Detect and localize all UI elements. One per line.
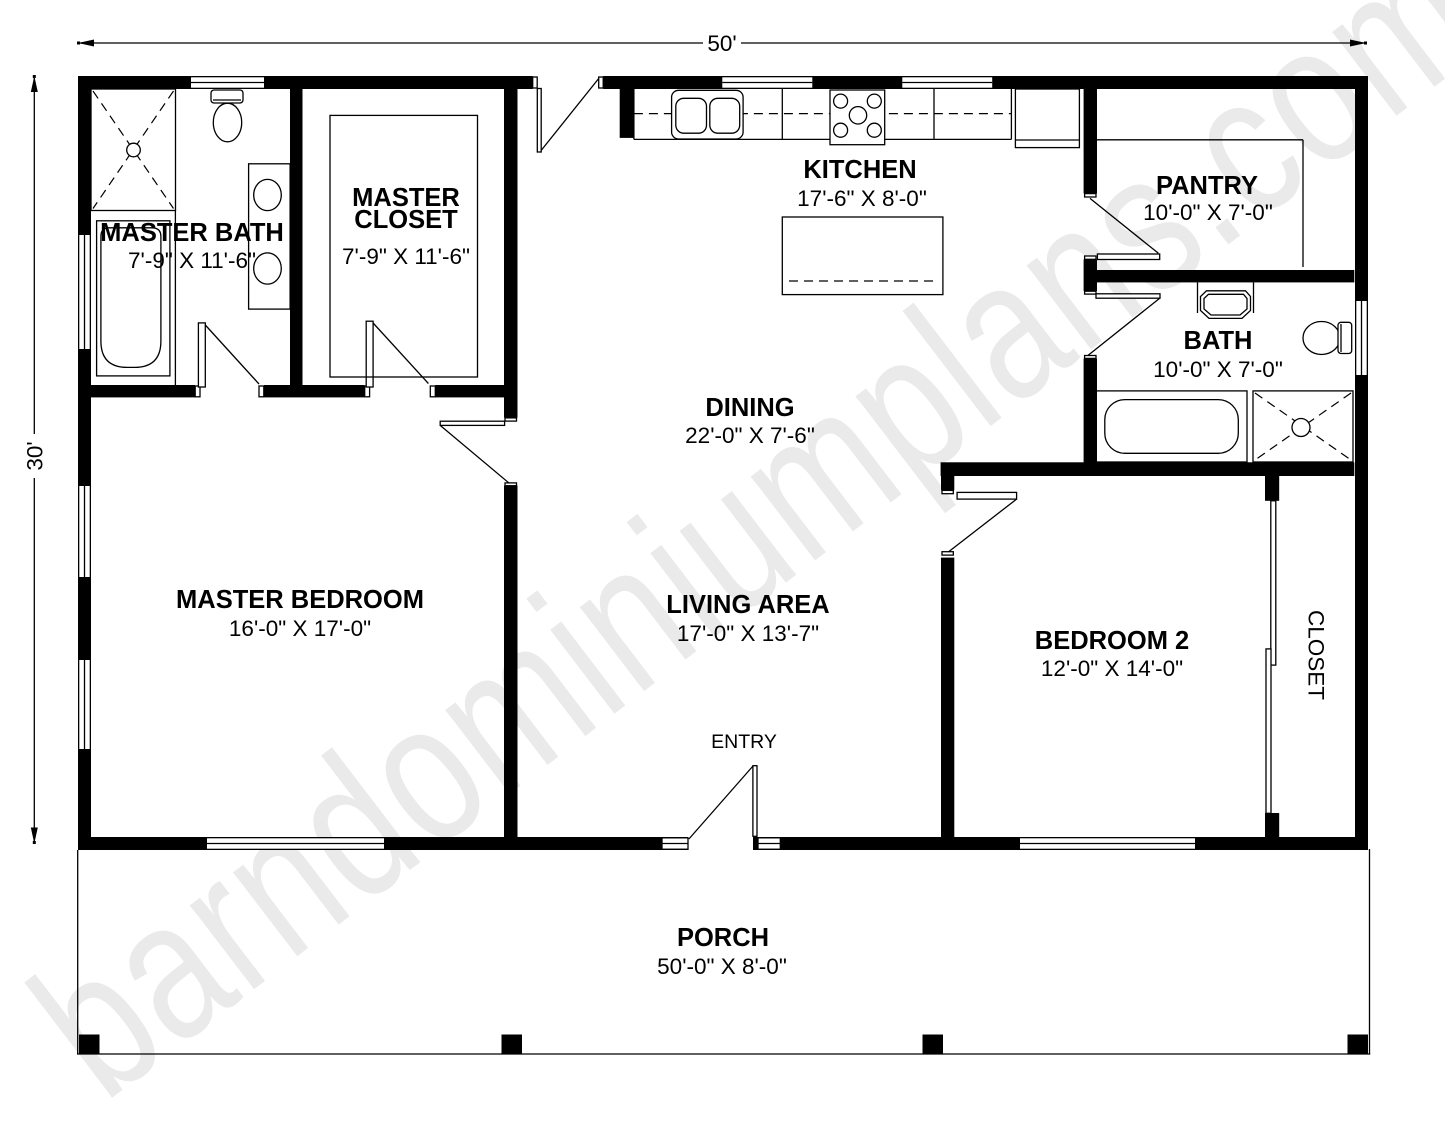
svg-text:CLOSET: CLOSET (1304, 610, 1329, 700)
svg-text:BEDROOM 2: BEDROOM 2 (1035, 627, 1189, 655)
svg-text:ENTRY: ENTRY (711, 731, 777, 753)
svg-text:7'-9" X 11'-6": 7'-9" X 11'-6" (342, 244, 470, 269)
svg-text:7'-9" X 11'-6": 7'-9" X 11'-6" (128, 248, 256, 273)
svg-text:MASTER BATH: MASTER BATH (100, 219, 284, 247)
svg-text:BATH: BATH (1184, 327, 1253, 355)
svg-text:17'-0" X 13'-7": 17'-0" X 13'-7" (677, 621, 819, 646)
svg-text:10'-0" X 7'-0": 10'-0" X 7'-0" (1143, 200, 1273, 225)
svg-text:DINING: DINING (705, 394, 794, 422)
svg-text:PORCH: PORCH (677, 924, 769, 952)
svg-text:30': 30' (23, 441, 48, 470)
svg-text:CLOSET: CLOSET (354, 206, 458, 234)
svg-text:17'-6" X 8'-0": 17'-6" X 8'-0" (797, 186, 927, 211)
svg-text:10'-0" X 7'-0": 10'-0" X 7'-0" (1153, 357, 1283, 382)
svg-text:50': 50' (707, 31, 736, 56)
svg-text:KITCHEN: KITCHEN (803, 156, 916, 184)
svg-text:50'-0" X 8'-0": 50'-0" X 8'-0" (657, 954, 787, 979)
svg-text:22'-0" X 7'-6": 22'-0" X 7'-6" (685, 423, 815, 448)
svg-text:PANTRY: PANTRY (1156, 172, 1258, 200)
svg-text:16'-0" X 17'-0": 16'-0" X 17'-0" (229, 616, 371, 641)
svg-text:12'-0" X 14'-0": 12'-0" X 14'-0" (1041, 656, 1183, 681)
svg-text:MASTER BEDROOM: MASTER BEDROOM (176, 586, 424, 614)
svg-text:LIVING AREA: LIVING AREA (666, 591, 829, 619)
